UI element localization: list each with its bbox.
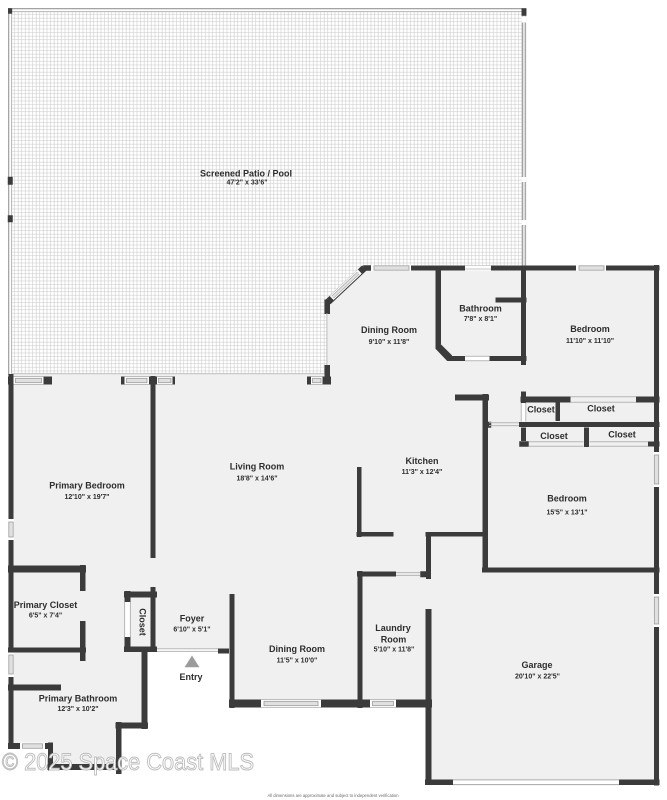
svg-text:© 2025 Space Coast MLS: © 2025 Space Coast MLS	[2, 749, 254, 776]
svg-text:Foyer: Foyer	[180, 614, 205, 624]
svg-text:12'3" x 10'2": 12'3" x 10'2"	[57, 706, 98, 713]
svg-text:Bedroom: Bedroom	[547, 494, 587, 504]
svg-text:Living Room: Living Room	[230, 462, 285, 472]
svg-text:11'10" x 11'10": 11'10" x 11'10"	[566, 338, 614, 345]
svg-text:6'10" x 5'1": 6'10" x 5'1"	[173, 627, 210, 634]
svg-text:Kitchen: Kitchen	[405, 456, 438, 466]
svg-text:15'5" x 13'1": 15'5" x 13'1"	[546, 510, 587, 517]
svg-text:Dining Room: Dining Room	[361, 325, 417, 335]
svg-text:11'5" x 10'0": 11'5" x 10'0"	[277, 658, 318, 665]
svg-text:Dining Room: Dining Room	[269, 644, 325, 654]
svg-text:5'10" x 11'8": 5'10" x 11'8"	[374, 647, 415, 654]
svg-text:6'5" x 7'4": 6'5" x 7'4"	[29, 613, 62, 620]
svg-text:Closet: Closet	[587, 404, 615, 414]
svg-text:Primary Bathroom: Primary Bathroom	[39, 694, 118, 704]
svg-text:Closet: Closet	[527, 405, 555, 415]
svg-text:7'8" x 8'1": 7'8" x 8'1"	[464, 316, 497, 323]
svg-text:All dimensions are approximate: All dimensions are approximate and subje…	[267, 793, 399, 798]
svg-text:Primary Bedroom: Primary Bedroom	[49, 481, 125, 491]
svg-text:Room: Room	[381, 635, 407, 645]
svg-text:Bedroom: Bedroom	[570, 324, 610, 334]
svg-text:11'3" x 12'4": 11'3" x 12'4"	[402, 469, 443, 476]
svg-text:12'10" x 19'7": 12'10" x 19'7"	[64, 494, 109, 501]
svg-text:Closet: Closet	[138, 608, 148, 636]
svg-text:Entry: Entry	[179, 672, 202, 682]
svg-text:47'2" x 33'6": 47'2" x 33'6"	[226, 180, 267, 187]
svg-text:Closet: Closet	[608, 430, 636, 440]
svg-text:Primary Closet: Primary Closet	[14, 600, 78, 610]
svg-text:18'8" x 14'6": 18'8" x 14'6"	[236, 476, 277, 483]
svg-text:Closet: Closet	[540, 431, 568, 441]
svg-text:Bathroom: Bathroom	[459, 304, 502, 314]
svg-text:Screened Patio / Pool: Screened Patio / Pool	[200, 169, 292, 179]
svg-text:9'10" x 11'8": 9'10" x 11'8"	[369, 339, 410, 346]
svg-text:Garage: Garage	[521, 660, 552, 670]
svg-text:20'10" x 22'5": 20'10" x 22'5"	[515, 674, 560, 681]
svg-text:Laundry: Laundry	[375, 623, 411, 633]
